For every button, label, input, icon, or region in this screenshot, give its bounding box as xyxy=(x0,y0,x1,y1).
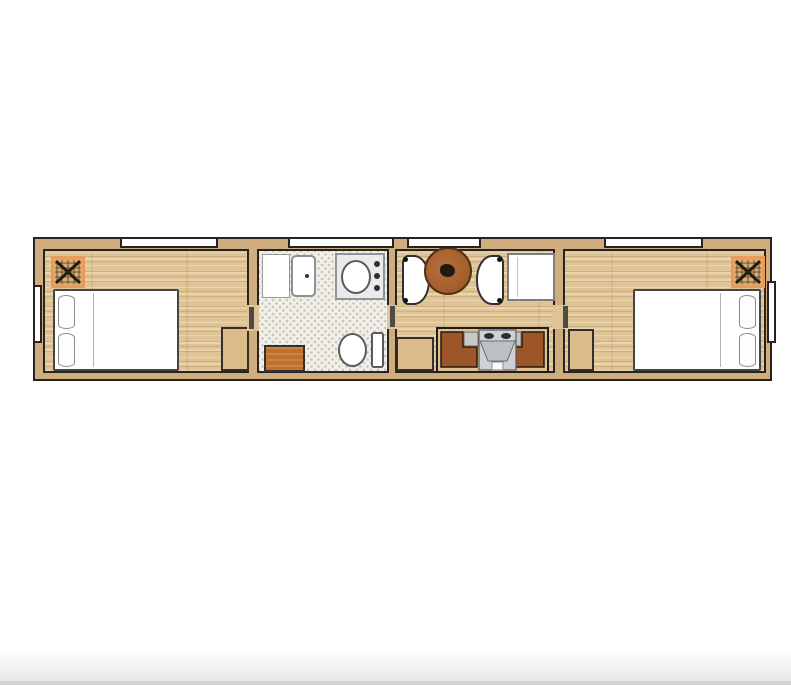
room-bedroom-left xyxy=(43,249,249,373)
toilet xyxy=(338,330,384,371)
room-bedroom-right xyxy=(563,249,766,373)
door-leaf-bedroom-left xyxy=(249,307,254,329)
floor-plan xyxy=(33,237,772,381)
window-top-2 xyxy=(288,237,394,248)
washer-unit xyxy=(291,255,316,297)
bed-fold-line xyxy=(93,293,94,367)
window-left-wall xyxy=(33,285,42,343)
pillow xyxy=(739,295,756,329)
cabinet-bedroom-right xyxy=(568,329,594,371)
round-dining-table xyxy=(424,247,472,295)
room-bathroom xyxy=(257,249,389,373)
shower-pan xyxy=(262,254,290,298)
table-mount-dot xyxy=(497,257,502,262)
seat-pad-left xyxy=(464,332,478,346)
pillow xyxy=(58,295,75,329)
washer-knob xyxy=(305,274,309,278)
room-living-dining xyxy=(395,249,555,373)
door-leaf-bathroom xyxy=(390,306,395,327)
stove-fireplace xyxy=(479,330,516,370)
page-bottom-gradient-bar xyxy=(0,649,791,685)
toilet-tank xyxy=(371,332,384,368)
bed-fold-line xyxy=(720,293,721,367)
ceiling-vent-icon xyxy=(731,256,765,288)
pillow xyxy=(739,333,756,367)
refrigerator xyxy=(507,253,555,301)
table-mount-dot xyxy=(403,298,408,303)
window-top-4 xyxy=(604,237,703,248)
table-centerpiece xyxy=(440,264,455,277)
cabinet-living xyxy=(396,337,434,371)
faucet-icon xyxy=(372,261,380,293)
table-mount-dot xyxy=(403,257,408,262)
window-right-wall xyxy=(767,281,776,343)
cabinet-bathroom xyxy=(264,345,305,372)
bed-right xyxy=(633,289,761,371)
u-bench-seating xyxy=(436,327,549,373)
refrigerator-door-line xyxy=(517,257,518,297)
toilet-bowl xyxy=(338,333,367,367)
ceiling-vent-icon xyxy=(51,256,85,288)
table-mount-dot xyxy=(497,298,502,303)
sink-basin xyxy=(341,260,371,294)
window-top-3 xyxy=(407,237,481,248)
sink-vanity xyxy=(335,253,385,300)
bed-left xyxy=(53,289,179,371)
page xyxy=(0,0,791,685)
window-top-1 xyxy=(120,237,218,248)
pillow xyxy=(58,333,75,367)
cabinet-bedroom-left xyxy=(221,327,249,371)
door-leaf-bedroom-right xyxy=(563,306,568,328)
